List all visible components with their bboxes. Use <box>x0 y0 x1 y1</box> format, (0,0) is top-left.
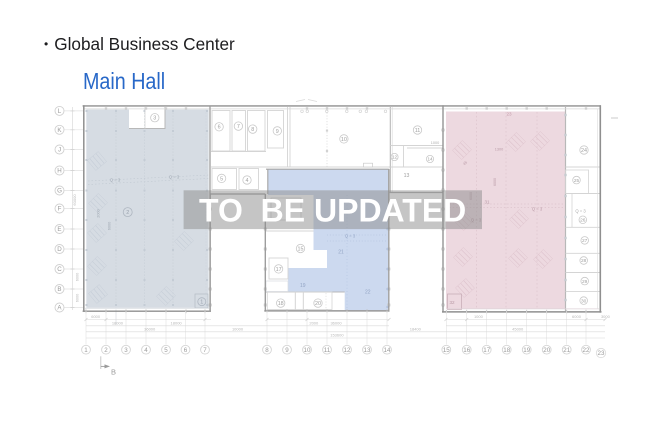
svg-text:4: 4 <box>246 178 249 184</box>
svg-text:5: 5 <box>220 176 223 182</box>
svg-text:14: 14 <box>427 157 433 162</box>
svg-text:18000: 18000 <box>171 320 183 325</box>
svg-text:L: L <box>58 108 62 115</box>
svg-text:7: 7 <box>237 124 240 130</box>
svg-text:12: 12 <box>392 155 398 160</box>
svg-text:8: 8 <box>251 127 254 133</box>
svg-text:1: 1 <box>200 300 203 306</box>
svg-text:36000: 36000 <box>144 326 156 331</box>
svg-text:8: 8 <box>265 347 269 354</box>
svg-text:5: 5 <box>164 347 168 354</box>
svg-text:19: 19 <box>523 347 530 354</box>
svg-text:2: 2 <box>126 210 129 216</box>
svg-text:10: 10 <box>304 347 311 354</box>
svg-text:1300: 1300 <box>495 148 503 152</box>
svg-text:26: 26 <box>580 218 586 224</box>
svg-text:27: 27 <box>582 238 588 244</box>
svg-text:Q = 3: Q = 3 <box>532 207 543 212</box>
svg-text:16: 16 <box>463 347 470 354</box>
svg-text:B: B <box>111 368 116 377</box>
svg-text:21: 21 <box>563 347 570 354</box>
svg-text:D: D <box>57 246 62 253</box>
svg-text:6000: 6000 <box>493 178 497 186</box>
svg-text:15: 15 <box>443 347 450 354</box>
svg-text:6000: 6000 <box>91 314 101 319</box>
svg-text:25: 25 <box>574 178 580 184</box>
svg-text:20: 20 <box>315 301 321 307</box>
svg-text:18000: 18000 <box>112 320 124 325</box>
svg-text:14: 14 <box>384 347 391 354</box>
svg-text:18400: 18400 <box>410 326 422 331</box>
svg-text:1: 1 <box>84 347 88 354</box>
svg-text:Q = 3: Q = 3 <box>110 178 121 183</box>
svg-text:12: 12 <box>344 347 351 354</box>
svg-text:4: 4 <box>144 347 148 354</box>
svg-text:17: 17 <box>276 267 282 273</box>
svg-text:6000: 6000 <box>572 314 582 319</box>
svg-text:3: 3 <box>153 116 156 122</box>
svg-text:6000: 6000 <box>76 273 80 281</box>
svg-text:36000: 36000 <box>330 320 342 325</box>
svg-text:TO BE UPDATED: TO BE UPDATED <box>199 192 466 228</box>
svg-text:45000: 45000 <box>512 326 524 331</box>
svg-text:F: F <box>58 206 62 213</box>
svg-text:1000: 1000 <box>431 141 439 145</box>
svg-text:22: 22 <box>583 347 590 354</box>
svg-text:6: 6 <box>218 125 221 131</box>
svg-text:7: 7 <box>203 347 207 354</box>
svg-text:18: 18 <box>278 301 284 307</box>
svg-text:6000: 6000 <box>108 222 112 230</box>
svg-text:32: 32 <box>449 300 455 305</box>
svg-text:C: C <box>57 266 62 273</box>
svg-text:H: H <box>57 168 61 175</box>
svg-text:B: B <box>57 286 61 293</box>
svg-text:3: 3 <box>124 347 128 354</box>
svg-text:6000: 6000 <box>76 294 80 302</box>
svg-text:10: 10 <box>341 137 347 143</box>
svg-text:24: 24 <box>581 148 587 154</box>
svg-text:31: 31 <box>484 200 490 205</box>
svg-text:J: J <box>58 147 61 154</box>
svg-text:18: 18 <box>503 347 510 354</box>
svg-text:G: G <box>57 188 62 195</box>
svg-text:153600: 153600 <box>330 333 344 338</box>
svg-text:21: 21 <box>338 250 344 256</box>
svg-text:Q = 3: Q = 3 <box>575 209 586 214</box>
svg-text:60000: 60000 <box>72 194 77 206</box>
svg-text:13: 13 <box>404 173 410 179</box>
svg-text:17: 17 <box>483 347 490 354</box>
svg-text:15: 15 <box>298 246 304 252</box>
svg-text:2: 2 <box>104 347 108 354</box>
svg-text:11: 11 <box>415 128 421 134</box>
svg-text:30: 30 <box>581 298 587 304</box>
svg-text:1000: 1000 <box>474 314 484 319</box>
svg-text:Q = 3: Q = 3 <box>169 175 180 180</box>
svg-text:E: E <box>57 226 61 233</box>
svg-text:13: 13 <box>364 347 371 354</box>
svg-text:28: 28 <box>581 258 587 264</box>
svg-text:20: 20 <box>543 347 550 354</box>
svg-text:10000: 10000 <box>232 326 244 331</box>
svg-text:11: 11 <box>324 347 331 354</box>
svg-text:23: 23 <box>598 350 605 357</box>
svg-text:Q = 3: Q = 3 <box>345 234 356 239</box>
svg-text:22: 22 <box>365 290 371 296</box>
svg-text:29: 29 <box>582 279 588 285</box>
svg-text:9: 9 <box>276 129 279 135</box>
svg-text:23: 23 <box>506 112 512 117</box>
svg-text:6: 6 <box>184 347 188 354</box>
svg-text:2000: 2000 <box>309 320 319 325</box>
svg-text:2000: 2000 <box>96 209 100 217</box>
svg-text:9: 9 <box>285 347 289 354</box>
svg-text:19: 19 <box>300 283 306 289</box>
